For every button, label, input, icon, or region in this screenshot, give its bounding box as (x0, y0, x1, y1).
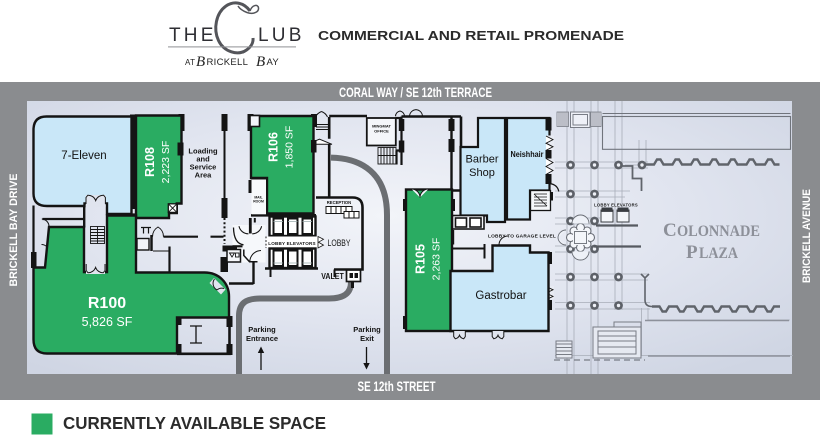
svg-text:SE 12th STREET: SE 12th STREET (358, 378, 436, 394)
svg-text:R108: R108 (143, 147, 157, 177)
svg-text:B: B (256, 54, 265, 70)
svg-text:CURRENTLY AVAILABLE SPACE: CURRENTLY AVAILABLE SPACE (63, 413, 326, 433)
svg-text:C: C (663, 220, 677, 241)
svg-text:R100: R100 (88, 295, 126, 312)
svg-text:Shop: Shop (469, 167, 495, 179)
svg-text:Exit: Exit (360, 334, 374, 343)
svg-text:Area: Area (195, 171, 213, 180)
svg-text:BRICKELL AVENUE: BRICKELL AVENUE (801, 189, 813, 283)
svg-text:Neishhair: Neishhair (511, 149, 545, 159)
svg-text:7-Eleven: 7-Eleven (61, 150, 106, 162)
svg-text:LOBBY ELEVATORS: LOBBY ELEVATORS (268, 241, 316, 246)
svg-text:CORAL WAY / SE 12th TERRACE: CORAL WAY / SE 12th TERRACE (339, 84, 492, 100)
svg-text:Barber: Barber (465, 154, 498, 166)
svg-text:R106: R106 (267, 132, 281, 162)
svg-text:2,263 SF: 2,263 SF (431, 238, 443, 281)
svg-text:B: B (196, 54, 205, 70)
svg-text:AY: AY (267, 57, 280, 68)
svg-text:Gastrobar: Gastrobar (475, 290, 526, 302)
svg-text:Parking: Parking (248, 325, 276, 334)
svg-text:RECEPTION: RECEPTION (327, 200, 351, 205)
svg-text:THE: THE (169, 25, 217, 46)
svg-text:R105: R105 (414, 244, 428, 274)
svg-text:Entrance: Entrance (246, 334, 278, 343)
svg-text:LOBBY: LOBBY (328, 238, 351, 248)
svg-text:OLONNADE: OLONNADE (677, 223, 760, 240)
svg-text:OFFICE: OFFICE (374, 129, 389, 134)
svg-text:LOBBY ELEVATORS: LOBBY ELEVATORS (594, 203, 638, 208)
svg-text:LAZA: LAZA (699, 245, 739, 262)
svg-text:1,850 SF: 1,850 SF (284, 126, 296, 169)
svg-text:AT: AT (185, 58, 195, 67)
svg-text:P: P (686, 242, 698, 263)
svg-text:BRICKELL BAY DRIVE: BRICKELL BAY DRIVE (8, 174, 20, 287)
svg-text:LUB: LUB (258, 25, 305, 46)
svg-text:5,826 SF: 5,826 SF (82, 315, 133, 329)
svg-text:VALET: VALET (321, 271, 344, 281)
svg-text:RICKELL: RICKELL (207, 57, 249, 68)
svg-text:COMMERCIAL AND RETAIL PROMENAD: COMMERCIAL AND RETAIL PROMENADE (318, 28, 624, 43)
svg-text:ROOM: ROOM (253, 200, 264, 204)
svg-text:LOBBY TO GARAGE LEVEL: LOBBY TO GARAGE LEVEL (488, 234, 556, 240)
svg-text:Parking: Parking (353, 325, 381, 334)
svg-text:2,223 SF: 2,223 SF (160, 141, 172, 184)
